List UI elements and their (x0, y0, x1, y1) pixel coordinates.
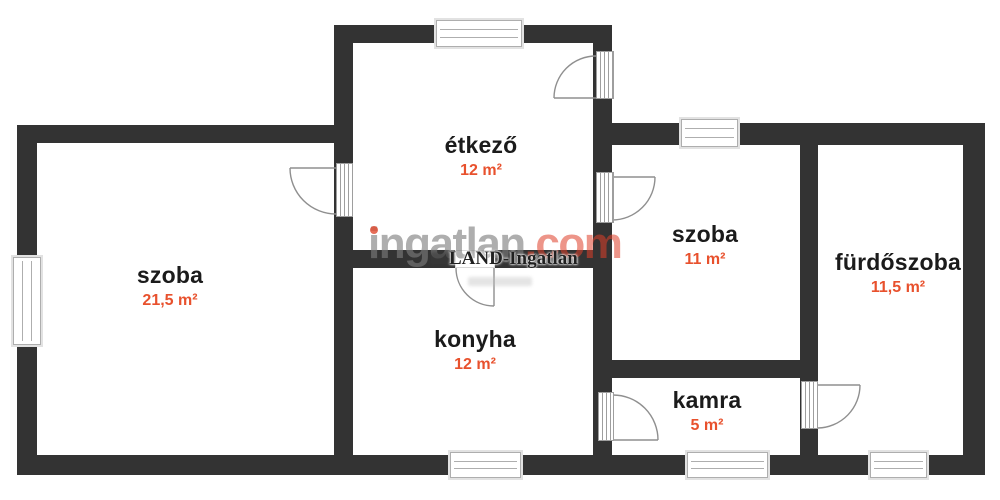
door-arc-kamra (613, 395, 658, 440)
room-name: szoba (672, 221, 738, 248)
door-arc-furdoszoba (818, 385, 860, 428)
door-kamra (598, 392, 614, 441)
door-arc-etkezo (554, 56, 596, 98)
room-area: 5 m² (673, 418, 742, 434)
room-name: konyha (434, 326, 516, 353)
faint-watermark-smudge (468, 277, 532, 286)
window-furdoszoba (870, 452, 927, 478)
window-etkezo (436, 20, 522, 47)
door-szoba-left (336, 163, 353, 217)
floor-plan: szoba 21,5 m² étkező 12 m² konyha 12 m² … (0, 0, 1000, 500)
room-area: 12 m² (445, 163, 518, 179)
room-label-furdoszoba: fürdőszoba 11,5 m² (835, 249, 961, 296)
window-konyha (450, 452, 521, 478)
room-area: 11,5 m² (835, 280, 961, 296)
door-arc-szoba-right (612, 177, 655, 220)
room-name: étkező (445, 132, 518, 159)
room-area: 21,5 m² (137, 293, 203, 309)
room-name: fürdőszoba (835, 249, 961, 276)
room-label-kamra: kamra 5 m² (673, 387, 742, 434)
window-szoba-right (681, 119, 738, 147)
window-kamra (687, 452, 768, 478)
room-area: 11 m² (672, 252, 738, 268)
door-arc-szoba-left (290, 168, 336, 214)
room-area: 12 m² (434, 357, 516, 373)
window-szoba-left (13, 257, 41, 345)
room-label-konyha: konyha 12 m² (434, 326, 516, 373)
door-arc-konyha (456, 268, 494, 306)
door-szoba-right (596, 172, 614, 223)
room-name: szoba (137, 262, 203, 289)
door-etkezo (596, 51, 614, 99)
room-label-szoba-left: szoba 21,5 m² (137, 262, 203, 309)
room-label-etkezo: étkező 12 m² (445, 132, 518, 179)
agency-watermark: LAND-Ingatlan (449, 249, 578, 268)
brand-watermark-i-dot (370, 226, 378, 234)
room-name: kamra (673, 387, 742, 414)
door-furdoszoba (801, 381, 818, 429)
room-label-szoba-right: szoba 11 m² (672, 221, 738, 268)
